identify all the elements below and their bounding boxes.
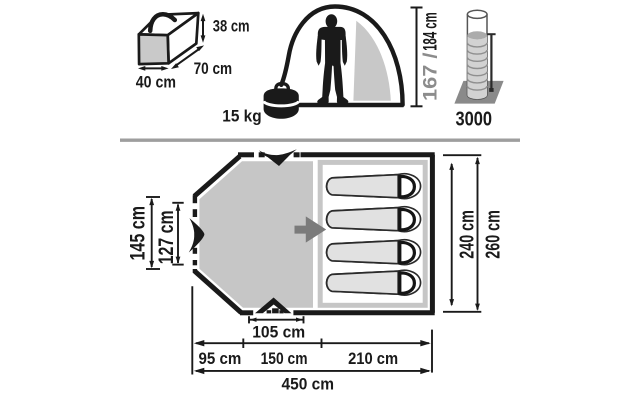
svg-text:145 cm: 145 cm <box>127 206 150 261</box>
svg-text:184 cm: 184 cm <box>420 12 441 51</box>
svg-text:3000: 3000 <box>456 109 493 131</box>
svg-text:127 cm: 127 cm <box>155 210 178 264</box>
svg-text:150 cm: 150 cm <box>261 349 308 368</box>
svg-text:450 cm: 450 cm <box>282 375 335 394</box>
svg-text:38 cm: 38 cm <box>213 17 250 36</box>
svg-text:15 kg: 15 kg <box>222 106 261 125</box>
svg-text:167 /: 167 / <box>420 52 441 101</box>
svg-text:40 cm: 40 cm <box>136 73 176 92</box>
svg-text:105 cm: 105 cm <box>252 322 305 341</box>
svg-text:95 cm: 95 cm <box>199 349 242 368</box>
svg-text:260 cm: 260 cm <box>483 210 505 259</box>
svg-text:210 cm: 210 cm <box>348 349 398 368</box>
svg-text:70 cm: 70 cm <box>194 59 233 78</box>
svg-text:240 cm: 240 cm <box>457 210 479 259</box>
